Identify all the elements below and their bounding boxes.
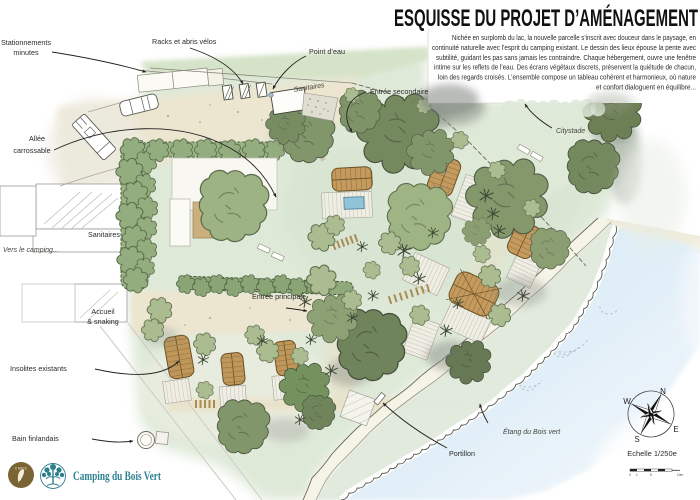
svg-text:Entrée secondaire: Entrée secondaire xyxy=(370,87,428,96)
svg-text:carrossable: carrossable xyxy=(13,146,50,155)
svg-text:ESQUISSE DU PROJET D’AMÉNAGEME: ESQUISSE DU PROJET D’AMÉNAGEMENT xyxy=(394,4,698,32)
svg-text:Citystade: Citystade xyxy=(556,128,585,135)
svg-text:0: 0 xyxy=(629,473,631,477)
svg-text:intime sur les reflets de l’ea: intime sur les reflets de l’eau. Des écr… xyxy=(434,63,696,72)
svg-text:minutes: minutes xyxy=(13,48,39,57)
svg-text:Racks et abris vélos: Racks et abris vélos xyxy=(152,37,217,46)
svg-text:continuité naturelle avec l’es: continuité naturelle avec l’esprit du ca… xyxy=(432,43,696,52)
svg-text:Entrée principale: Entrée principale xyxy=(252,292,306,301)
svg-text:Echelle 1/250e: Echelle 1/250e xyxy=(627,449,677,458)
svg-text:Vers le camping...: Vers le camping... xyxy=(3,247,59,254)
svg-text:1: 1 xyxy=(636,473,638,477)
svg-text:et confort dialoguent en équil: et confort dialoguent en équilibre... xyxy=(596,83,696,92)
svg-text:Bain finlandais: Bain finlandais xyxy=(12,434,59,443)
svg-text:5: 5 xyxy=(650,473,652,477)
svg-text:& snaking: & snaking xyxy=(87,317,119,326)
svg-text:Allée: Allée xyxy=(29,134,45,143)
svg-text:S: S xyxy=(634,435,639,444)
svg-text:Étang du Bois vert: Étang du Bois vert xyxy=(503,427,561,436)
svg-text:Camping du Bois Vert: Camping du Bois Vert xyxy=(73,469,162,483)
svg-text:Sanitaires: Sanitaires xyxy=(88,230,120,239)
svg-text:N: N xyxy=(660,387,666,396)
svg-text:Point d’eau: Point d’eau xyxy=(309,47,345,56)
svg-text:loin des regards croisés. L’en: loin des regards croisés. L’ensemble com… xyxy=(438,73,696,82)
svg-text:W: W xyxy=(623,397,631,406)
svg-text:subtilité, guidant les pas san: subtilité, guidant les pas sans jamais l… xyxy=(436,53,696,62)
svg-text:Stationnements: Stationnements xyxy=(1,38,51,47)
svg-text:Nichée en surplomb du lac, la: Nichée en surplomb du lac, la nouvelle p… xyxy=(452,33,696,42)
svg-text:Accueil: Accueil xyxy=(91,307,115,316)
svg-text:Insolites existants: Insolites existants xyxy=(10,364,67,373)
svg-text:E: E xyxy=(673,425,678,434)
svg-text:CMNS: CMNS xyxy=(15,467,28,471)
svg-text:Portillon: Portillon xyxy=(449,449,475,458)
svg-text:10m: 10m xyxy=(677,473,684,477)
